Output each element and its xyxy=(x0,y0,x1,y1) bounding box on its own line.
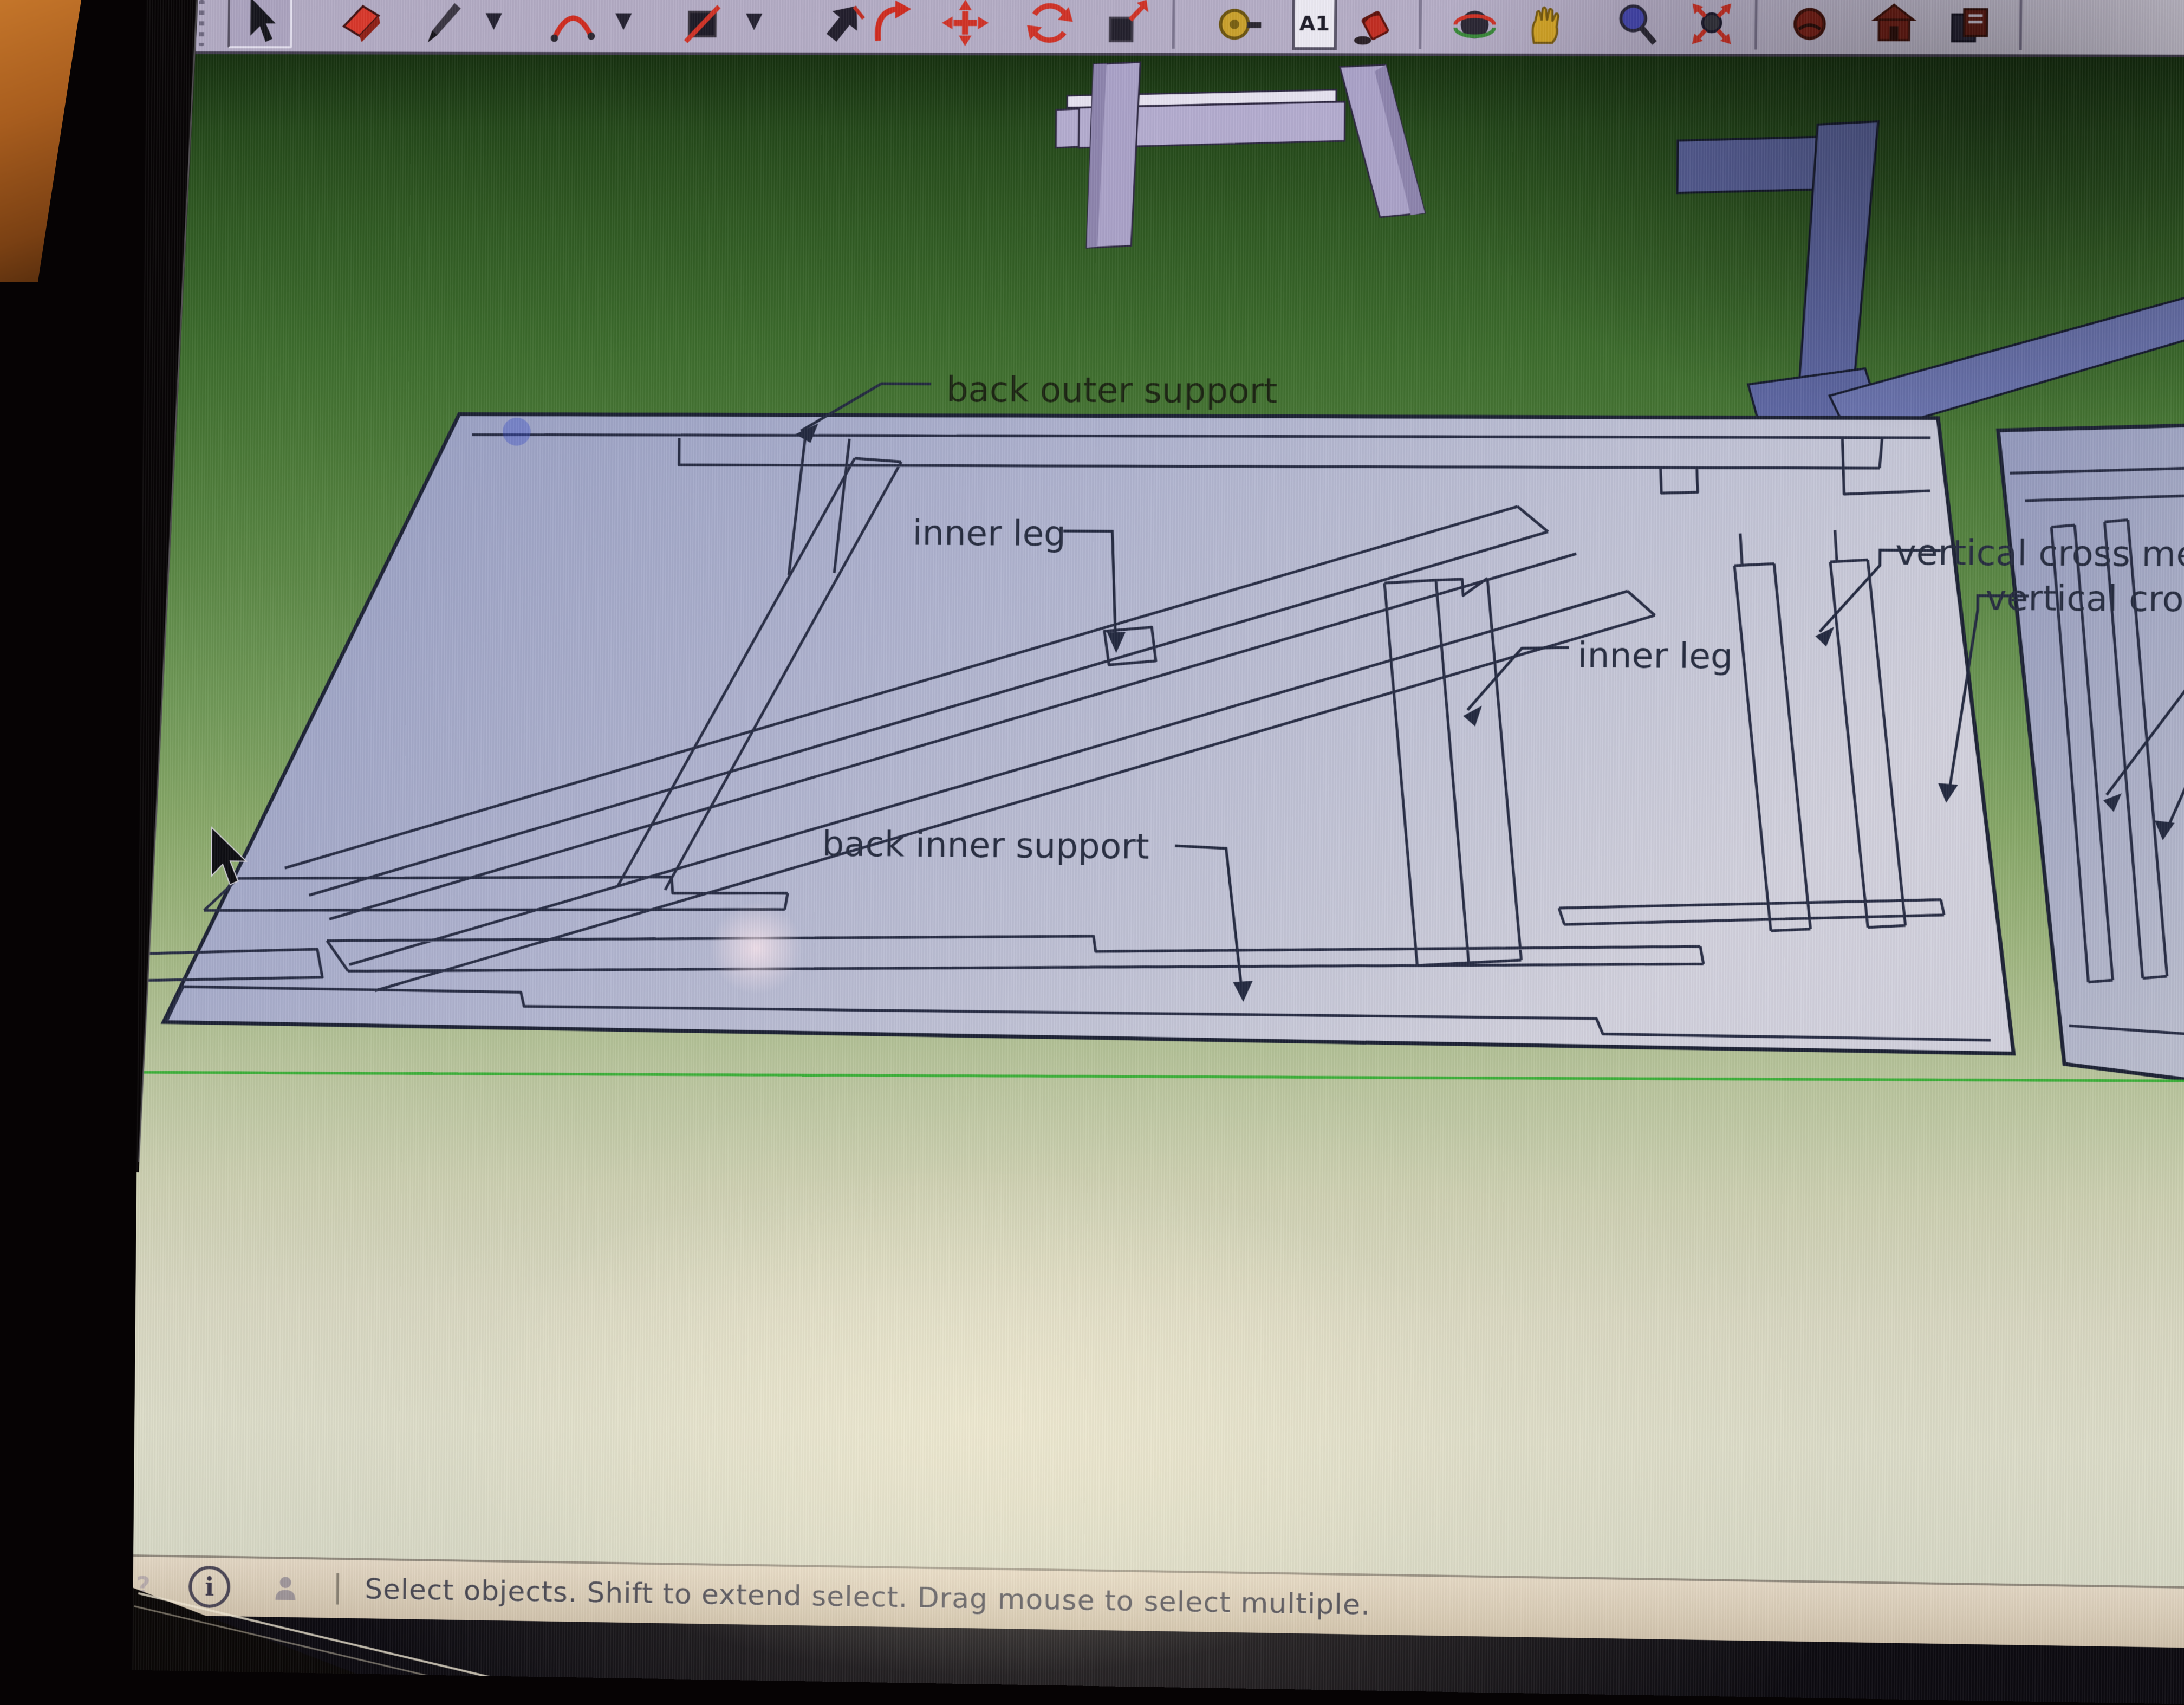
zoom-extents-icon xyxy=(1685,0,1739,50)
move-icon xyxy=(939,0,992,49)
toolbar-separator xyxy=(1754,0,1758,49)
scale-icon xyxy=(1098,0,1152,50)
eraser-icon xyxy=(334,0,387,49)
rectangle-tool-dropdown[interactable]: ▼ xyxy=(740,7,768,34)
monitor-screen: ▼ ▼ ▼ xyxy=(132,0,2184,1705)
rotate-icon xyxy=(1023,0,1076,50)
move-tool-button[interactable] xyxy=(935,0,996,49)
components-button[interactable] xyxy=(1939,0,2001,51)
pan-tool-button[interactable] xyxy=(1513,0,1575,50)
orbit-tool-button[interactable] xyxy=(1444,0,1506,50)
info-icon[interactable]: i xyxy=(188,1566,231,1609)
toolbar-separator xyxy=(1172,0,1175,49)
zoom-tool-button[interactable] xyxy=(1605,0,1668,50)
arc-tool-button[interactable] xyxy=(542,0,603,49)
rectangle-icon xyxy=(676,0,729,49)
follow-me-icon xyxy=(863,0,917,49)
paint-bucket-icon xyxy=(1347,0,1401,50)
eraser-tool-button[interactable] xyxy=(330,0,391,49)
user-icon[interactable] xyxy=(268,1570,303,1606)
follow-me-tool-button[interactable] xyxy=(860,0,921,49)
main-toolbar: ▼ ▼ ▼ xyxy=(146,0,2184,57)
zoom-icon xyxy=(1609,0,1663,50)
orbit-icon xyxy=(1448,0,1502,50)
status-separator xyxy=(336,1573,339,1605)
toolbar-separator xyxy=(2019,0,2023,50)
warehouse-button[interactable] xyxy=(1863,0,1925,51)
scale-tool-button[interactable] xyxy=(1094,0,1155,50)
status-message: Select objects. Shift to extend select. … xyxy=(365,1573,1370,1622)
rotate-tool-button[interactable] xyxy=(1019,0,1080,50)
shadows-button[interactable] xyxy=(1779,0,1841,51)
warehouse-icon xyxy=(1867,0,1921,51)
arc-tool-dropdown[interactable]: ▼ xyxy=(609,7,638,34)
rectangle-tool-button[interactable] xyxy=(672,0,733,49)
toolbar-separator xyxy=(1419,0,1422,49)
help-icon[interactable]: ? xyxy=(126,1568,161,1604)
line-tool-button[interactable] xyxy=(413,0,473,49)
dimension-tool-button[interactable]: A1 xyxy=(1284,0,1345,50)
tape-measure-button[interactable] xyxy=(1208,0,1270,50)
select-cursor-icon xyxy=(233,0,287,46)
components-icon xyxy=(1942,0,1997,51)
zoom-extents-button[interactable] xyxy=(1681,0,1743,50)
paint-bucket-button[interactable] xyxy=(1343,0,1405,50)
shadows-icon xyxy=(1783,0,1837,51)
line-tool-dropdown[interactable]: ▼ xyxy=(480,7,508,34)
dimension-icon: A1 xyxy=(1292,0,1337,50)
toolbar-grip[interactable] xyxy=(199,0,205,46)
dimension-label: A1 xyxy=(1299,11,1330,35)
tape-measure-icon xyxy=(1212,0,1265,50)
select-tool-button[interactable] xyxy=(227,0,292,48)
pencil-icon xyxy=(417,0,470,49)
model-canvas[interactable] xyxy=(133,51,2184,1587)
arc-icon xyxy=(546,0,599,49)
pan-hand-icon xyxy=(1517,0,1571,50)
